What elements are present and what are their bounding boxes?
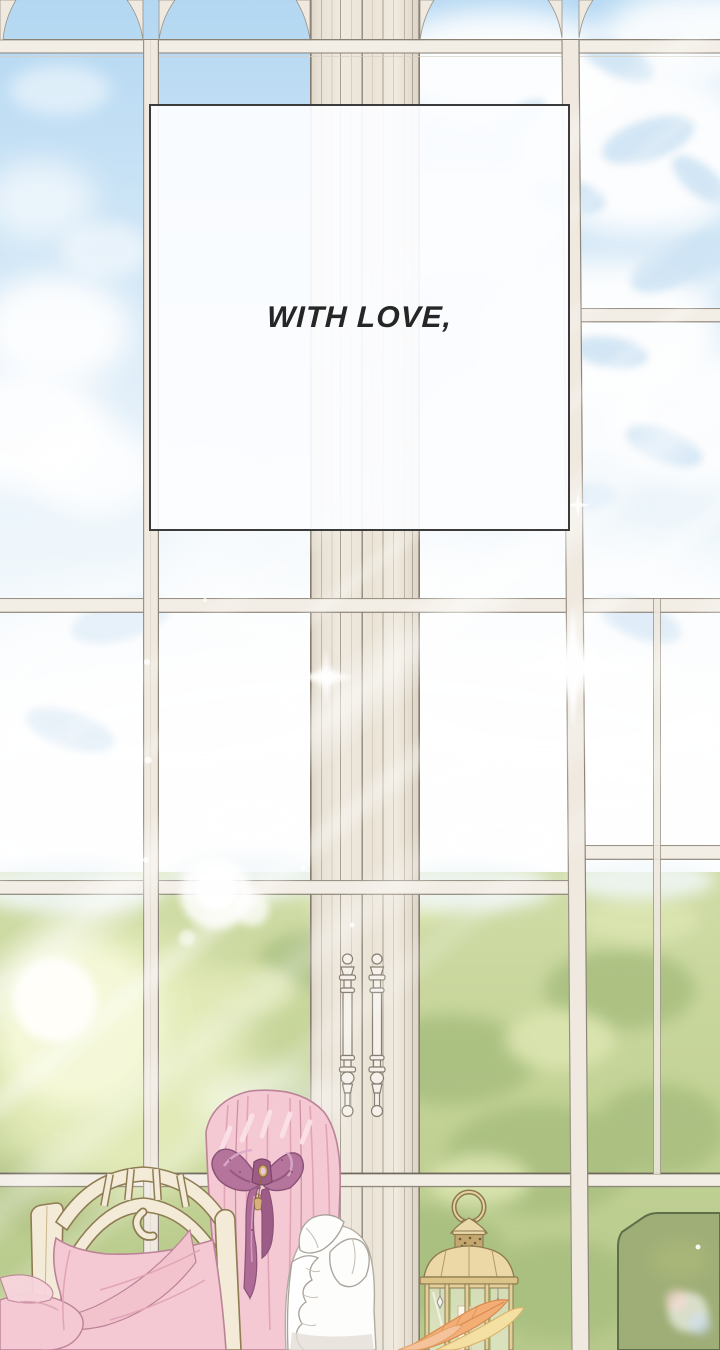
garden-panel [618, 1213, 720, 1350]
lantern-eave [420, 1277, 518, 1284]
comic-panel: WITH LOVE, [0, 0, 720, 1350]
caption-box: WITH LOVE, [149, 104, 570, 531]
caption-text: WITH LOVE, [266, 301, 452, 335]
